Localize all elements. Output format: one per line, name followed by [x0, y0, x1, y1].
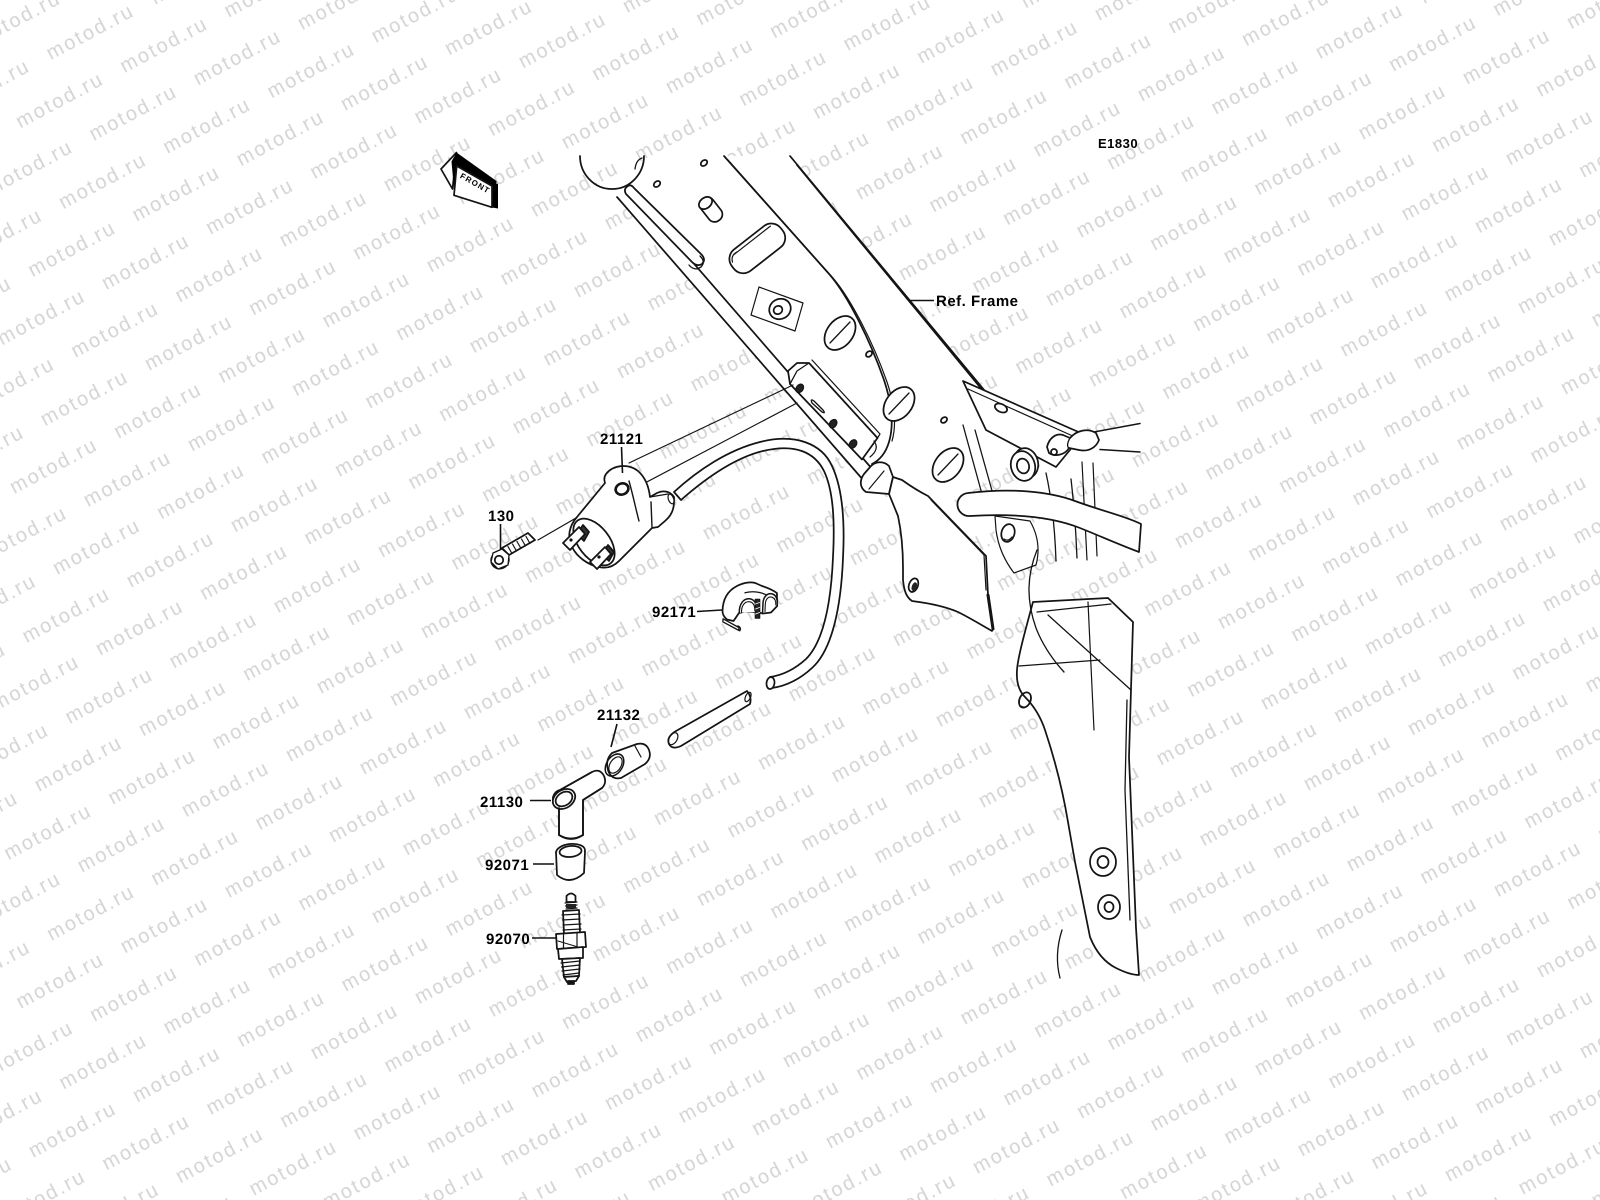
svg-text:92171: 92171 — [652, 604, 696, 621]
svg-text:92071: 92071 — [485, 857, 529, 874]
svg-text:130: 130 — [488, 508, 515, 525]
svg-text:21130: 21130 — [480, 794, 523, 811]
svg-text:21121: 21121 — [600, 431, 643, 448]
svg-text:92070: 92070 — [486, 931, 530, 948]
svg-text:21132: 21132 — [597, 707, 640, 724]
svg-text:Ref. Frame: Ref. Frame — [936, 293, 1019, 310]
svg-text:E1830: E1830 — [1098, 136, 1138, 151]
